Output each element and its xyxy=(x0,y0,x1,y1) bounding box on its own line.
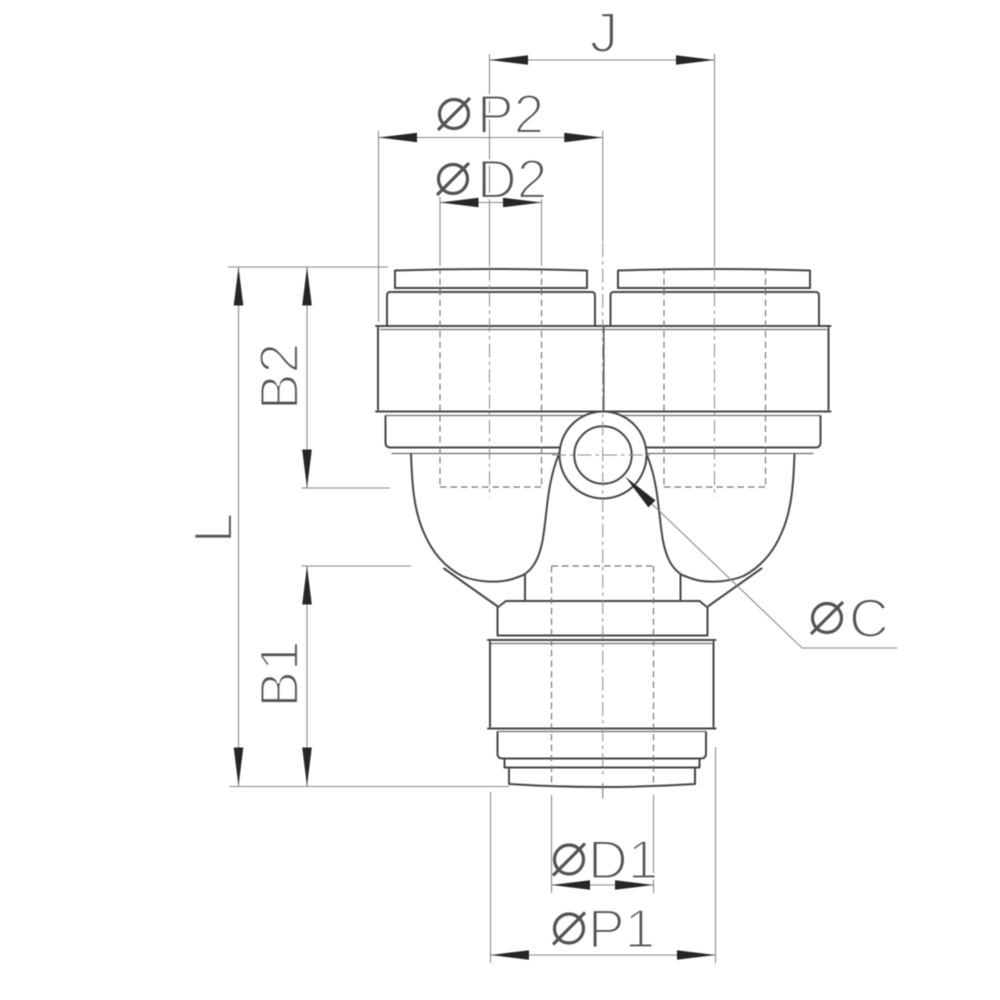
svg-text:L: L xyxy=(182,513,244,544)
svg-text:D2: D2 xyxy=(477,148,547,210)
svg-text:B2: B2 xyxy=(248,343,310,410)
svg-text:P2: P2 xyxy=(477,83,544,145)
svg-text:C: C xyxy=(849,587,889,649)
svg-text:P1: P1 xyxy=(588,898,655,960)
svg-text:J: J xyxy=(590,1,619,65)
svg-text:D1: D1 xyxy=(588,829,658,891)
svg-text:B1: B1 xyxy=(248,640,310,707)
